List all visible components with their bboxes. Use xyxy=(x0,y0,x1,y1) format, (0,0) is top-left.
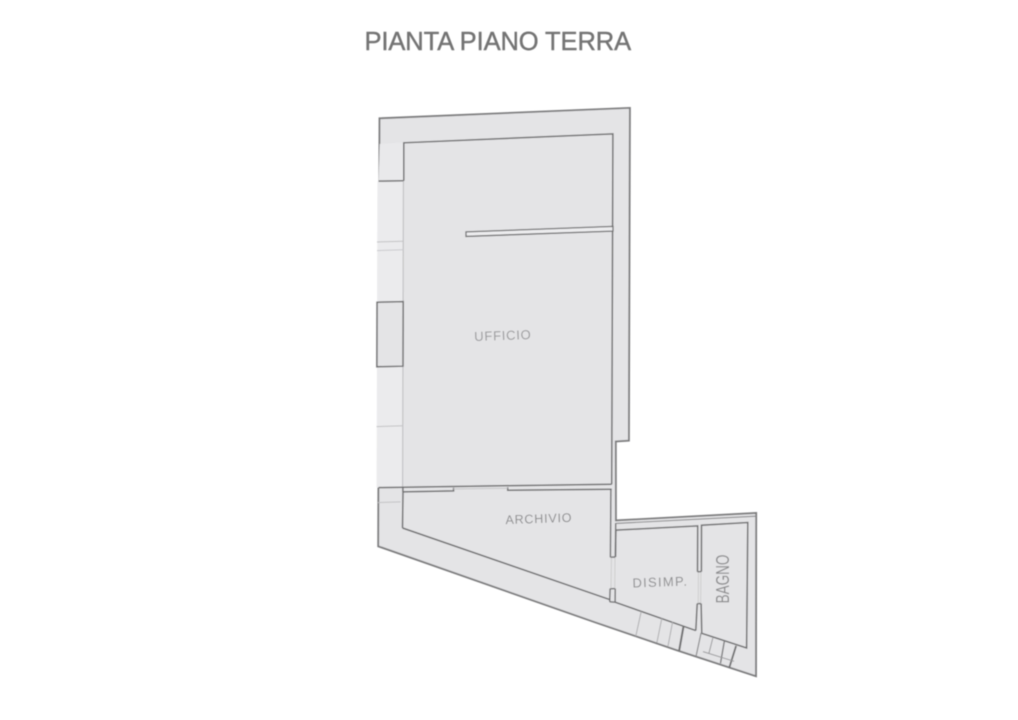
svg-text:BAGNO: BAGNO xyxy=(713,555,734,604)
svg-text:ARCHIVIO: ARCHIVIO xyxy=(505,511,572,527)
svg-text:UFFICIO: UFFICIO xyxy=(474,327,532,344)
svg-text:DISIMP.: DISIMP. xyxy=(632,574,688,591)
svg-text:PIANTA PIANO TERRA: PIANTA PIANO TERRA xyxy=(365,28,632,56)
